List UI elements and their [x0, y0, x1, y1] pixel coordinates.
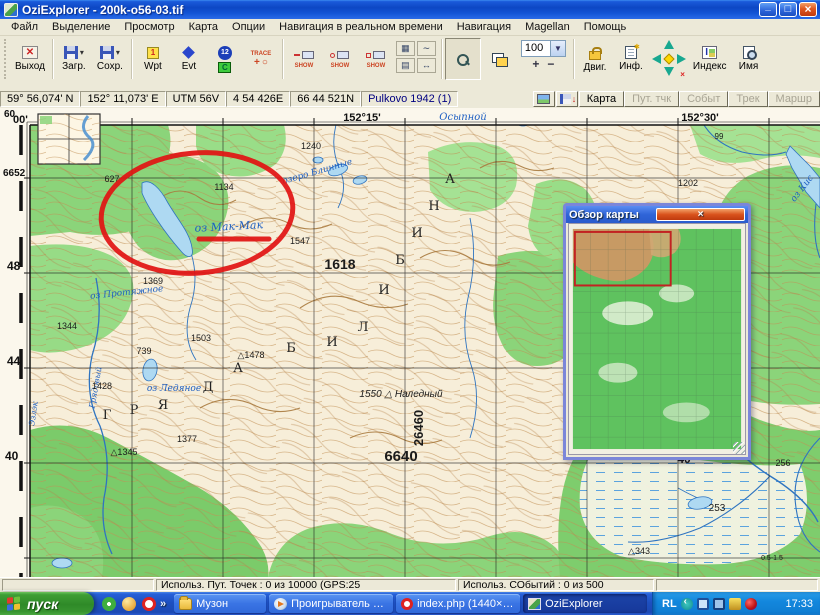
- load-icon: [64, 46, 78, 59]
- close-button[interactable]: [799, 2, 817, 17]
- pan-center-icon[interactable]: [663, 53, 674, 64]
- prev-icon[interactable]: [681, 598, 693, 610]
- waypoint-number-icon: 12: [218, 46, 232, 60]
- overview-title-bar[interactable]: Обзор карты ×: [566, 206, 748, 223]
- map-label: 1428: [92, 381, 112, 391]
- track-style-button[interactable]: ∼: [417, 41, 436, 56]
- start-label: пуск: [27, 596, 58, 612]
- map-label: 152°30': [681, 112, 719, 124]
- zoom-level-field[interactable]: 100: [521, 40, 551, 57]
- show-track-button[interactable]: SHOW: [286, 38, 322, 80]
- index-label: Индекс: [693, 61, 727, 72]
- utm-easting-value: 4 54 426E: [226, 91, 290, 107]
- opera-icon: [401, 598, 413, 610]
- map-label: 6640: [384, 448, 417, 465]
- save-icon: [100, 46, 114, 59]
- map-inset: [38, 114, 100, 164]
- name-search-icon: [743, 46, 755, 59]
- overview-title: Обзор карты: [569, 209, 656, 221]
- taskbar-tasks: МузонПроигрыватель Win...index.php (1440…: [174, 592, 652, 615]
- minimize-button[interactable]: [759, 2, 777, 17]
- display-icon[interactable]: [697, 598, 709, 610]
- status-panel-empty: [2, 579, 154, 591]
- status-waypoints: Использ. Пут. Точек : 0 из 10000 (GPS:25: [156, 579, 456, 591]
- grid-toggle-button[interactable]: ▦: [396, 41, 415, 56]
- waypoint-number-button[interactable]: 12 C: [207, 38, 243, 80]
- tray-language-label[interactable]: RL: [662, 598, 677, 610]
- map-label: 1377: [177, 434, 197, 444]
- save-label: Сохр.: [97, 61, 123, 72]
- windows-logo-icon: [7, 596, 22, 612]
- maximize-button[interactable]: [779, 2, 797, 17]
- index-icon: [702, 46, 717, 59]
- launch-ball-icon[interactable]: [122, 597, 136, 611]
- mode-tab-3[interactable]: Трек: [728, 91, 767, 107]
- map-label: 26460: [411, 410, 426, 446]
- trace-button[interactable]: TRACE +○: [243, 38, 279, 80]
- map-label: Осыпной: [439, 112, 486, 123]
- map-label: △1345: [111, 447, 138, 457]
- wmp-icon: [274, 598, 287, 610]
- task-button-3[interactable]: OziExplorer: [523, 594, 647, 613]
- map-label: 44: [7, 354, 21, 368]
- map-label: 6652: [3, 168, 26, 179]
- map-label: А: [445, 172, 455, 187]
- menu-bar: ФайлВыделениеПросмотрКартаОпцииНавигация…: [0, 19, 820, 36]
- display-icon2[interactable]: [713, 598, 725, 610]
- map-label: 1202: [678, 178, 698, 188]
- app-icon: [4, 3, 18, 17]
- pan-left-icon[interactable]: [652, 54, 661, 64]
- task-label: OziExplorer: [545, 598, 602, 610]
- map-label: 152°15': [343, 112, 381, 124]
- mode-tab-0[interactable]: Карта: [579, 91, 624, 107]
- pan-right-icon[interactable]: [677, 54, 686, 64]
- taskbar: пуск » МузонПроигрыватель Win...index.ph…: [0, 592, 820, 615]
- map-label: 256: [775, 458, 790, 468]
- status-panel-spacer: [656, 579, 818, 591]
- name-label: Имя: [739, 61, 758, 72]
- marsh-area: [580, 456, 807, 564]
- move-label: Двиг.: [583, 62, 606, 73]
- menu-item-0[interactable]: Файл: [4, 20, 45, 34]
- menu-item-3[interactable]: Карта: [182, 20, 225, 34]
- labels-toggle-button[interactable]: ▤: [396, 58, 415, 73]
- ozi-explorer-window: OziExplorer - 200k-o56-03.tif ФайлВыделе…: [0, 0, 820, 615]
- latitude-value: 59° 56,074' N: [0, 91, 80, 107]
- utm-northing-value: 66 44 521N: [290, 91, 361, 107]
- info-label: Инф.: [619, 61, 643, 72]
- longitude-value: 152° 11,073' E: [80, 91, 165, 107]
- map-label: 1134: [214, 182, 233, 192]
- exit-button[interactable]: ✕ Выход: [11, 38, 49, 80]
- menu-item-2[interactable]: Просмотр: [117, 20, 181, 34]
- map-label: оз Ледяное: [147, 384, 201, 394]
- load-label: Загр.: [62, 61, 86, 72]
- info-icon: [625, 46, 637, 59]
- window-title: OziExplorer - 200k-o56-03.tif: [22, 3, 759, 17]
- exit-label: Выход: [15, 61, 45, 72]
- pan-down-icon[interactable]: [664, 67, 674, 76]
- chevron-icon[interactable]: »: [160, 598, 166, 610]
- map-label: 1547: [290, 236, 310, 246]
- overview-minimap[interactable]: [569, 224, 745, 454]
- map-label: △1478: [238, 350, 265, 360]
- tray-clock: 17:33: [785, 598, 813, 610]
- map-label: 99: [715, 132, 724, 141]
- info-button[interactable]: Инф.: [613, 38, 649, 80]
- quick-launch: »: [94, 592, 174, 615]
- lock-icon: [589, 51, 601, 60]
- map-label: 48: [7, 259, 21, 273]
- mode-tab-4[interactable]: Маршр: [768, 91, 820, 107]
- windows-icon: [492, 53, 506, 65]
- map-label: И: [411, 226, 422, 241]
- waypoint-icon: 1: [147, 47, 159, 59]
- menu-item-4[interactable]: Опции: [225, 20, 272, 34]
- zoom-in-button[interactable]: +: [532, 59, 539, 69]
- map-label: 1503: [191, 333, 211, 343]
- task-label: Музон: [196, 598, 228, 610]
- start-button[interactable]: пуск: [0, 592, 94, 615]
- system-tray: RL 17:33: [652, 592, 820, 615]
- toolbar: ✕ Выход ▾ Загр. ▾ Сохр. 1 Wpt Evt 12 C T…: [0, 36, 820, 90]
- map-label: 739: [136, 346, 151, 356]
- display-options-cluster: ▦ ∼ ▤ ↔: [396, 41, 436, 73]
- map-label: И: [326, 335, 337, 350]
- event-square-icon: [366, 53, 371, 58]
- map-label: 00': [13, 114, 28, 126]
- overview-body[interactable]: [568, 223, 746, 455]
- load-button[interactable]: ▾ Загр.: [56, 38, 92, 80]
- map-label: Б: [286, 341, 296, 356]
- save-position-button[interactable]: [556, 91, 578, 107]
- task-button-1[interactable]: Проигрыватель Win...: [269, 594, 393, 613]
- save-button[interactable]: ▾ Сохр.: [92, 38, 128, 80]
- zoom-control: 100 ▼ + −: [521, 40, 566, 69]
- task-label: index.php (1440×76...: [417, 598, 515, 610]
- track-icon: [294, 54, 300, 56]
- chevron-down-icon: ▾: [116, 48, 120, 57]
- launch-flower-icon[interactable]: [102, 597, 116, 611]
- chevron-down-icon: ▾: [80, 48, 84, 57]
- comment-icon: C: [218, 62, 231, 73]
- map-label: И: [378, 283, 389, 298]
- map-image-button[interactable]: [533, 91, 555, 107]
- event-label: Evt: [182, 61, 196, 72]
- volume-icon[interactable]: [729, 598, 741, 610]
- move-map-button[interactable]: Двиг.: [577, 38, 613, 80]
- title-bar: OziExplorer - 200k-o56-03.tif: [0, 0, 820, 19]
- toolbar-grip[interactable]: [4, 39, 9, 79]
- show-events-button[interactable]: SHOW: [358, 38, 394, 80]
- show-waypoints-button[interactable]: SHOW: [322, 38, 358, 80]
- magnifier-icon: [456, 53, 469, 66]
- map-label: 0.5-1.5: [761, 555, 783, 562]
- event-button[interactable]: Evt: [171, 38, 207, 80]
- show-events-label: SHOW: [367, 63, 386, 69]
- scale-toggle-button[interactable]: ↔: [417, 58, 436, 73]
- map-label: △343: [628, 546, 650, 556]
- map-label: 1344: [57, 321, 77, 331]
- coordinate-bar: 59° 56,074' N 152° 11,073' E UTM 56V 4 5…: [0, 90, 820, 108]
- map-label: Л: [358, 320, 369, 335]
- map-label: Б: [395, 253, 405, 268]
- task-label: Проигрыватель Win...: [291, 598, 388, 610]
- pan-control[interactable]: ×: [651, 39, 687, 79]
- overview-close-button[interactable]: ×: [656, 208, 745, 221]
- menu-item-1[interactable]: Выделение: [45, 20, 117, 34]
- utm-zone-value: UTM 56V: [166, 91, 226, 107]
- map-label: 1240: [301, 141, 321, 151]
- map-label: 1550 △ Наледный: [359, 389, 443, 400]
- waypoint-label: Wpt: [144, 61, 162, 72]
- pan-up-icon[interactable]: [664, 40, 674, 49]
- launch-opera-icon[interactable]: [142, 597, 156, 611]
- map-label: 253: [709, 503, 726, 514]
- task-button-0[interactable]: Музон: [174, 594, 266, 613]
- map-windows-button[interactable]: [481, 38, 517, 80]
- ozi-icon: [528, 598, 541, 610]
- map-label: 40: [5, 449, 19, 463]
- menu-item-6[interactable]: Навигация: [450, 20, 518, 34]
- save-icon: [560, 94, 571, 104]
- zoom-tool-button[interactable]: [445, 38, 481, 80]
- show-track-label: SHOW: [295, 63, 314, 69]
- overview-window[interactable]: Обзор карты ×: [563, 203, 751, 460]
- menu-item-8[interactable]: Помощь: [577, 20, 634, 34]
- show-waypoints-label: SHOW: [331, 63, 350, 69]
- index-button[interactable]: Индекс: [689, 38, 731, 80]
- map-label: Н: [428, 199, 439, 214]
- zoom-out-button[interactable]: −: [547, 59, 554, 69]
- map-label: Г: [103, 408, 112, 423]
- pan-close-icon[interactable]: ×: [680, 70, 685, 79]
- map-label: А: [233, 361, 243, 376]
- waypoint-button[interactable]: 1 Wpt: [135, 38, 171, 80]
- status-bar: Использ. Пут. Точек : 0 из 10000 (GPS:25…: [0, 577, 820, 592]
- overview-resize-grip[interactable]: [733, 442, 745, 454]
- waypoint-dot-icon: [330, 53, 335, 58]
- task-button-2[interactable]: index.php (1440×76...: [396, 594, 520, 613]
- guard-icon[interactable]: [745, 598, 757, 610]
- exit-icon: ✕: [22, 46, 38, 59]
- menu-item-5[interactable]: Навигация в реальном времени: [272, 20, 450, 34]
- map-label: Я: [158, 398, 169, 413]
- status-events: Использ. СОбытий : 0 из 500: [458, 579, 654, 591]
- folder-icon: [179, 598, 192, 610]
- menu-item-7[interactable]: Magellan: [518, 20, 577, 34]
- map-label: Д: [203, 380, 214, 395]
- mode-tab-2[interactable]: Событ: [679, 91, 728, 107]
- map-viewport: Осыпнойозеро Блинныеоз Мак-Макоз Протяжн…: [0, 108, 820, 577]
- mode-tab-1[interactable]: Пут. тчк: [624, 91, 679, 107]
- map-label: Р: [130, 403, 139, 418]
- map-label: 1618: [324, 256, 355, 272]
- datum-value: Pulkovo 1942 (1): [361, 91, 458, 107]
- name-search-button[interactable]: Имя: [731, 38, 767, 80]
- event-icon: [183, 46, 196, 59]
- map-label: 1369: [143, 276, 163, 286]
- image-icon: [537, 94, 550, 104]
- zoom-dropdown-button[interactable]: ▼: [551, 40, 566, 57]
